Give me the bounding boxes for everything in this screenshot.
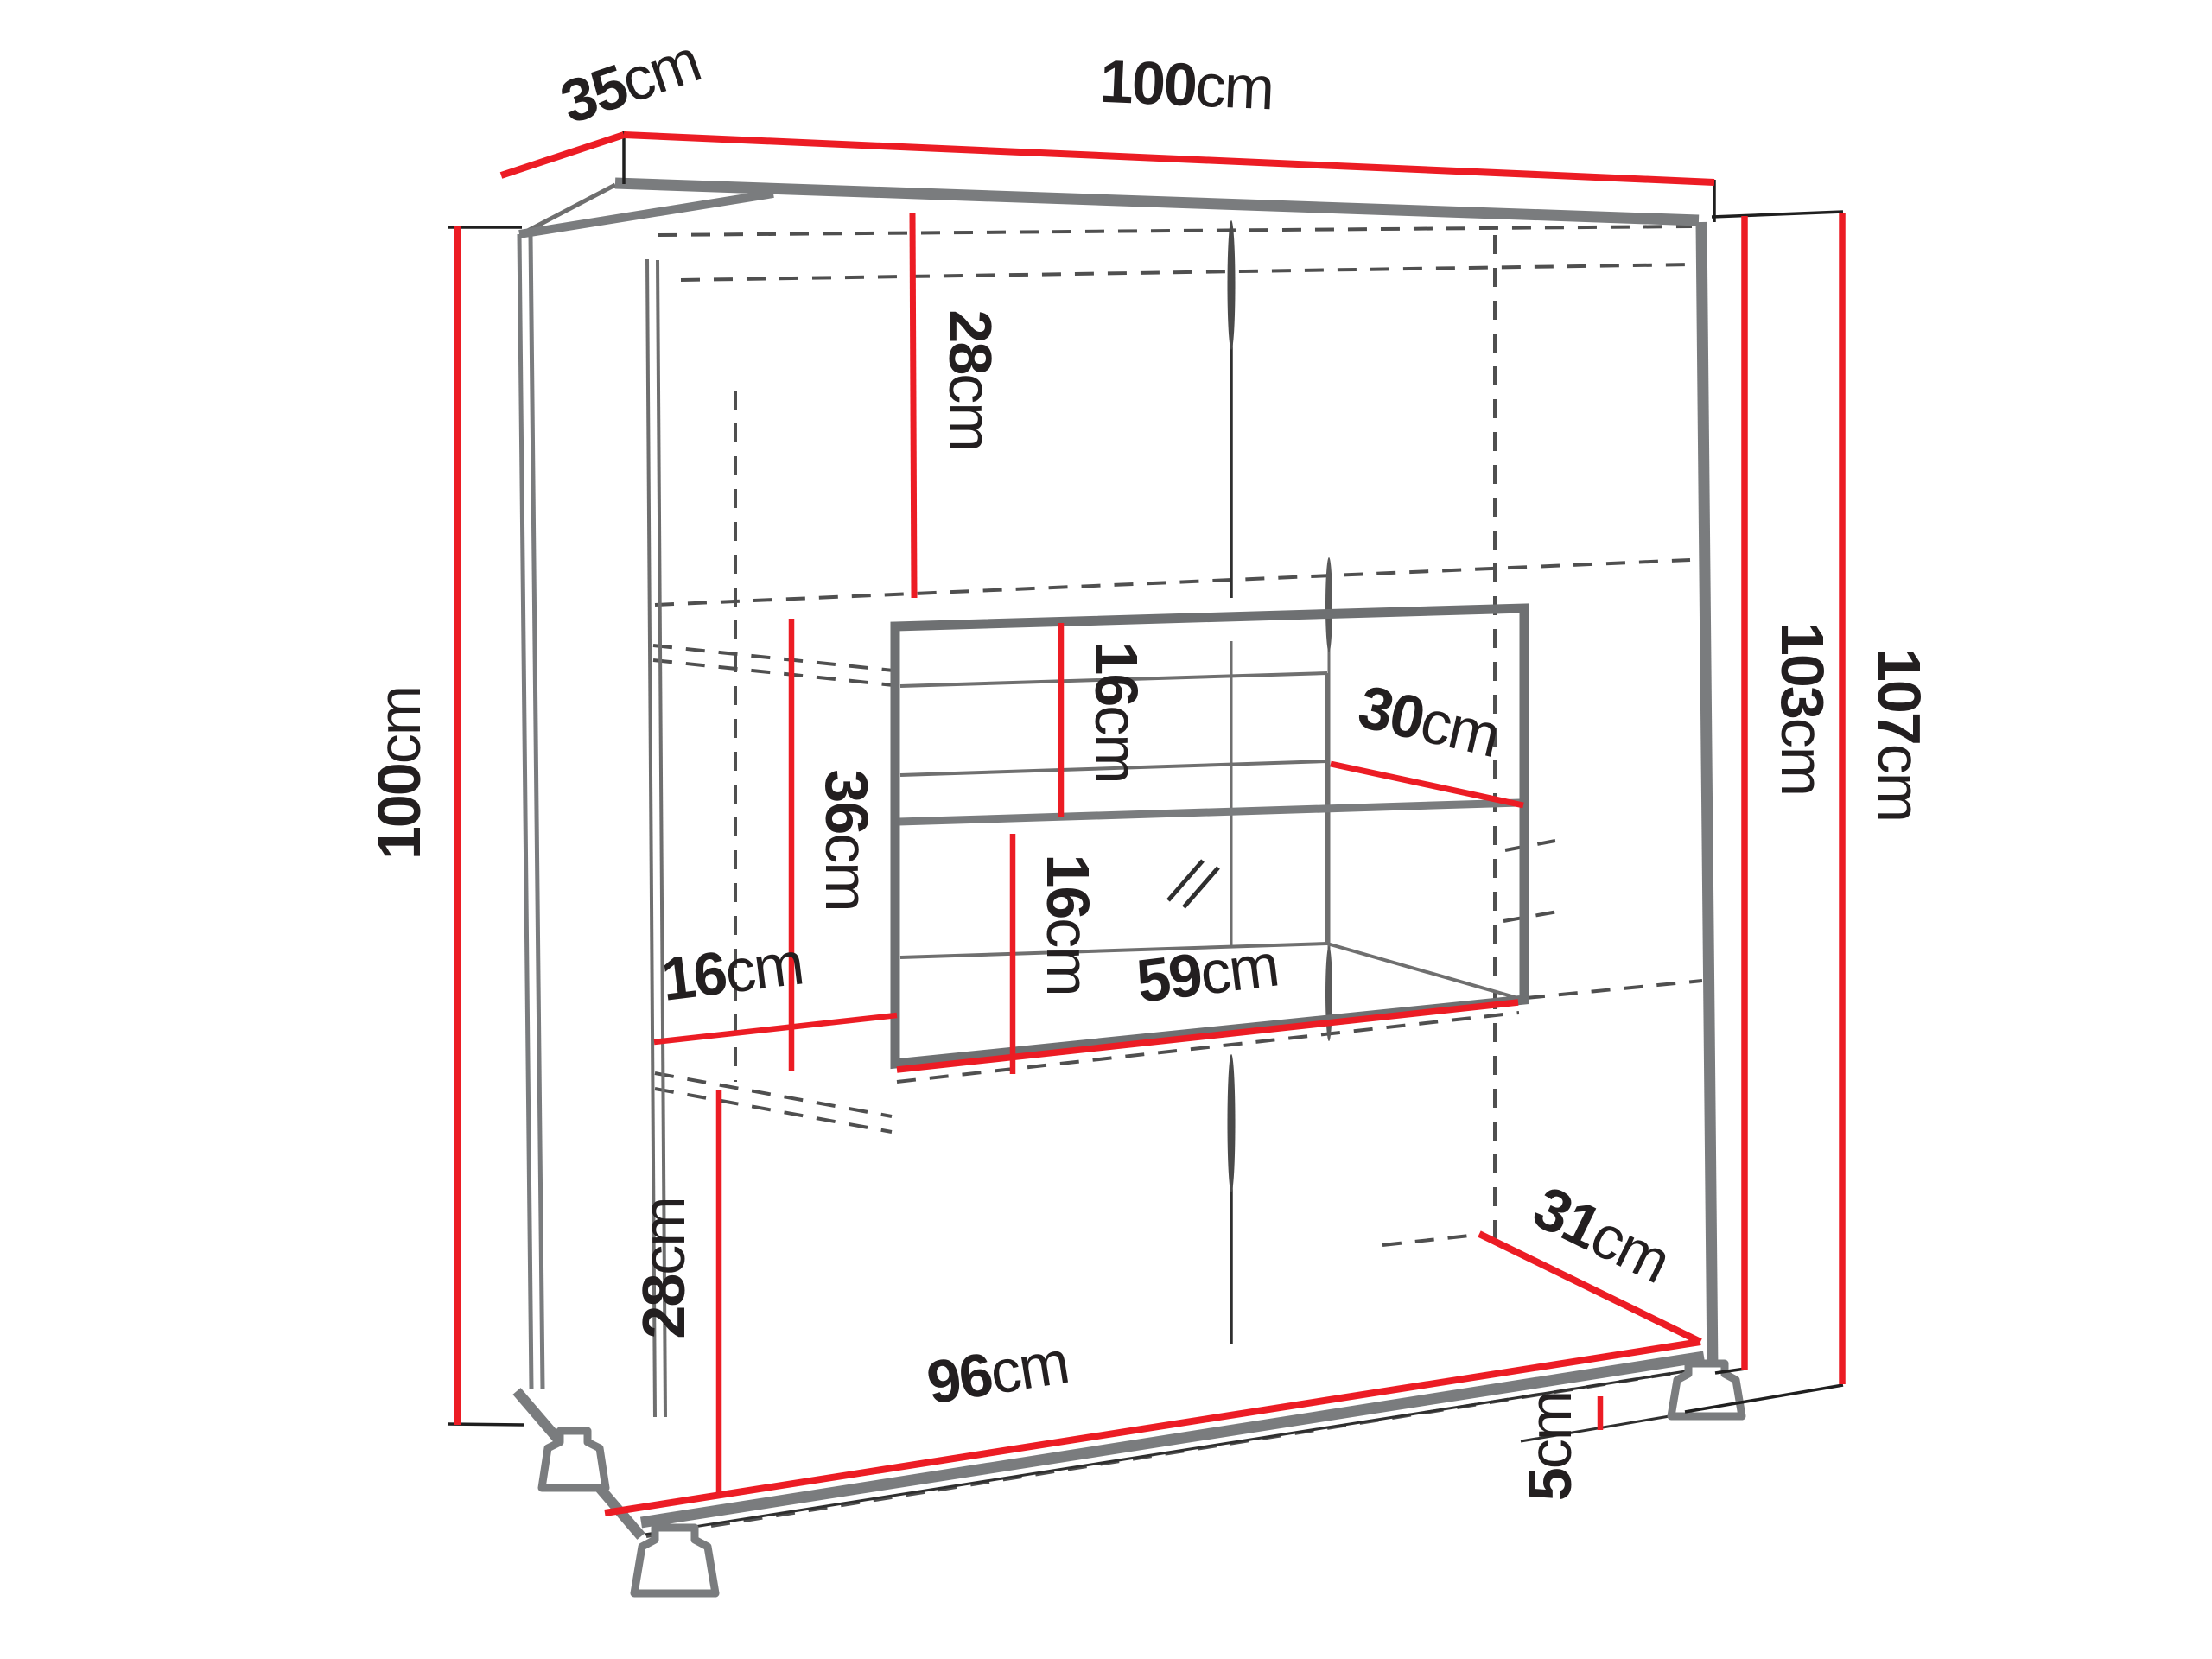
dim-label-lower-section: 28cm (630, 1198, 697, 1338)
dim-label-top-width: 100cm (1098, 48, 1274, 123)
dim-label-display-lower-gap: 16cm (1034, 854, 1102, 995)
dim-label-total-height: 107cm (1866, 648, 1933, 821)
dim-label-foot-height: 5cm (1516, 1392, 1584, 1501)
door-gap-shade (1228, 220, 1236, 350)
dim-label-left-height: 100cm (365, 687, 433, 860)
diagram-canvas: 35cm 100cm 100cm 28cm 16cm 30cm 16cm 59c… (0, 0, 2212, 1659)
door-gap-shade (1228, 1054, 1236, 1192)
dim-label-middle-section: 36cm (813, 769, 880, 910)
dim-label-carcass-height: 103cm (1769, 622, 1836, 795)
dim-label-upper-section: 28cm (937, 309, 1004, 450)
dim-label-display-upper-gap: 16cm (1083, 641, 1150, 782)
furniture-dimension-diagram: 35cm 100cm 100cm 28cm 16cm 30cm 16cm 59c… (0, 0, 2212, 1659)
dim-line-upper-section (912, 213, 914, 598)
door-gap-shade (1325, 557, 1332, 652)
background (0, 0, 2212, 1659)
door-gap-shade (1325, 946, 1332, 1041)
